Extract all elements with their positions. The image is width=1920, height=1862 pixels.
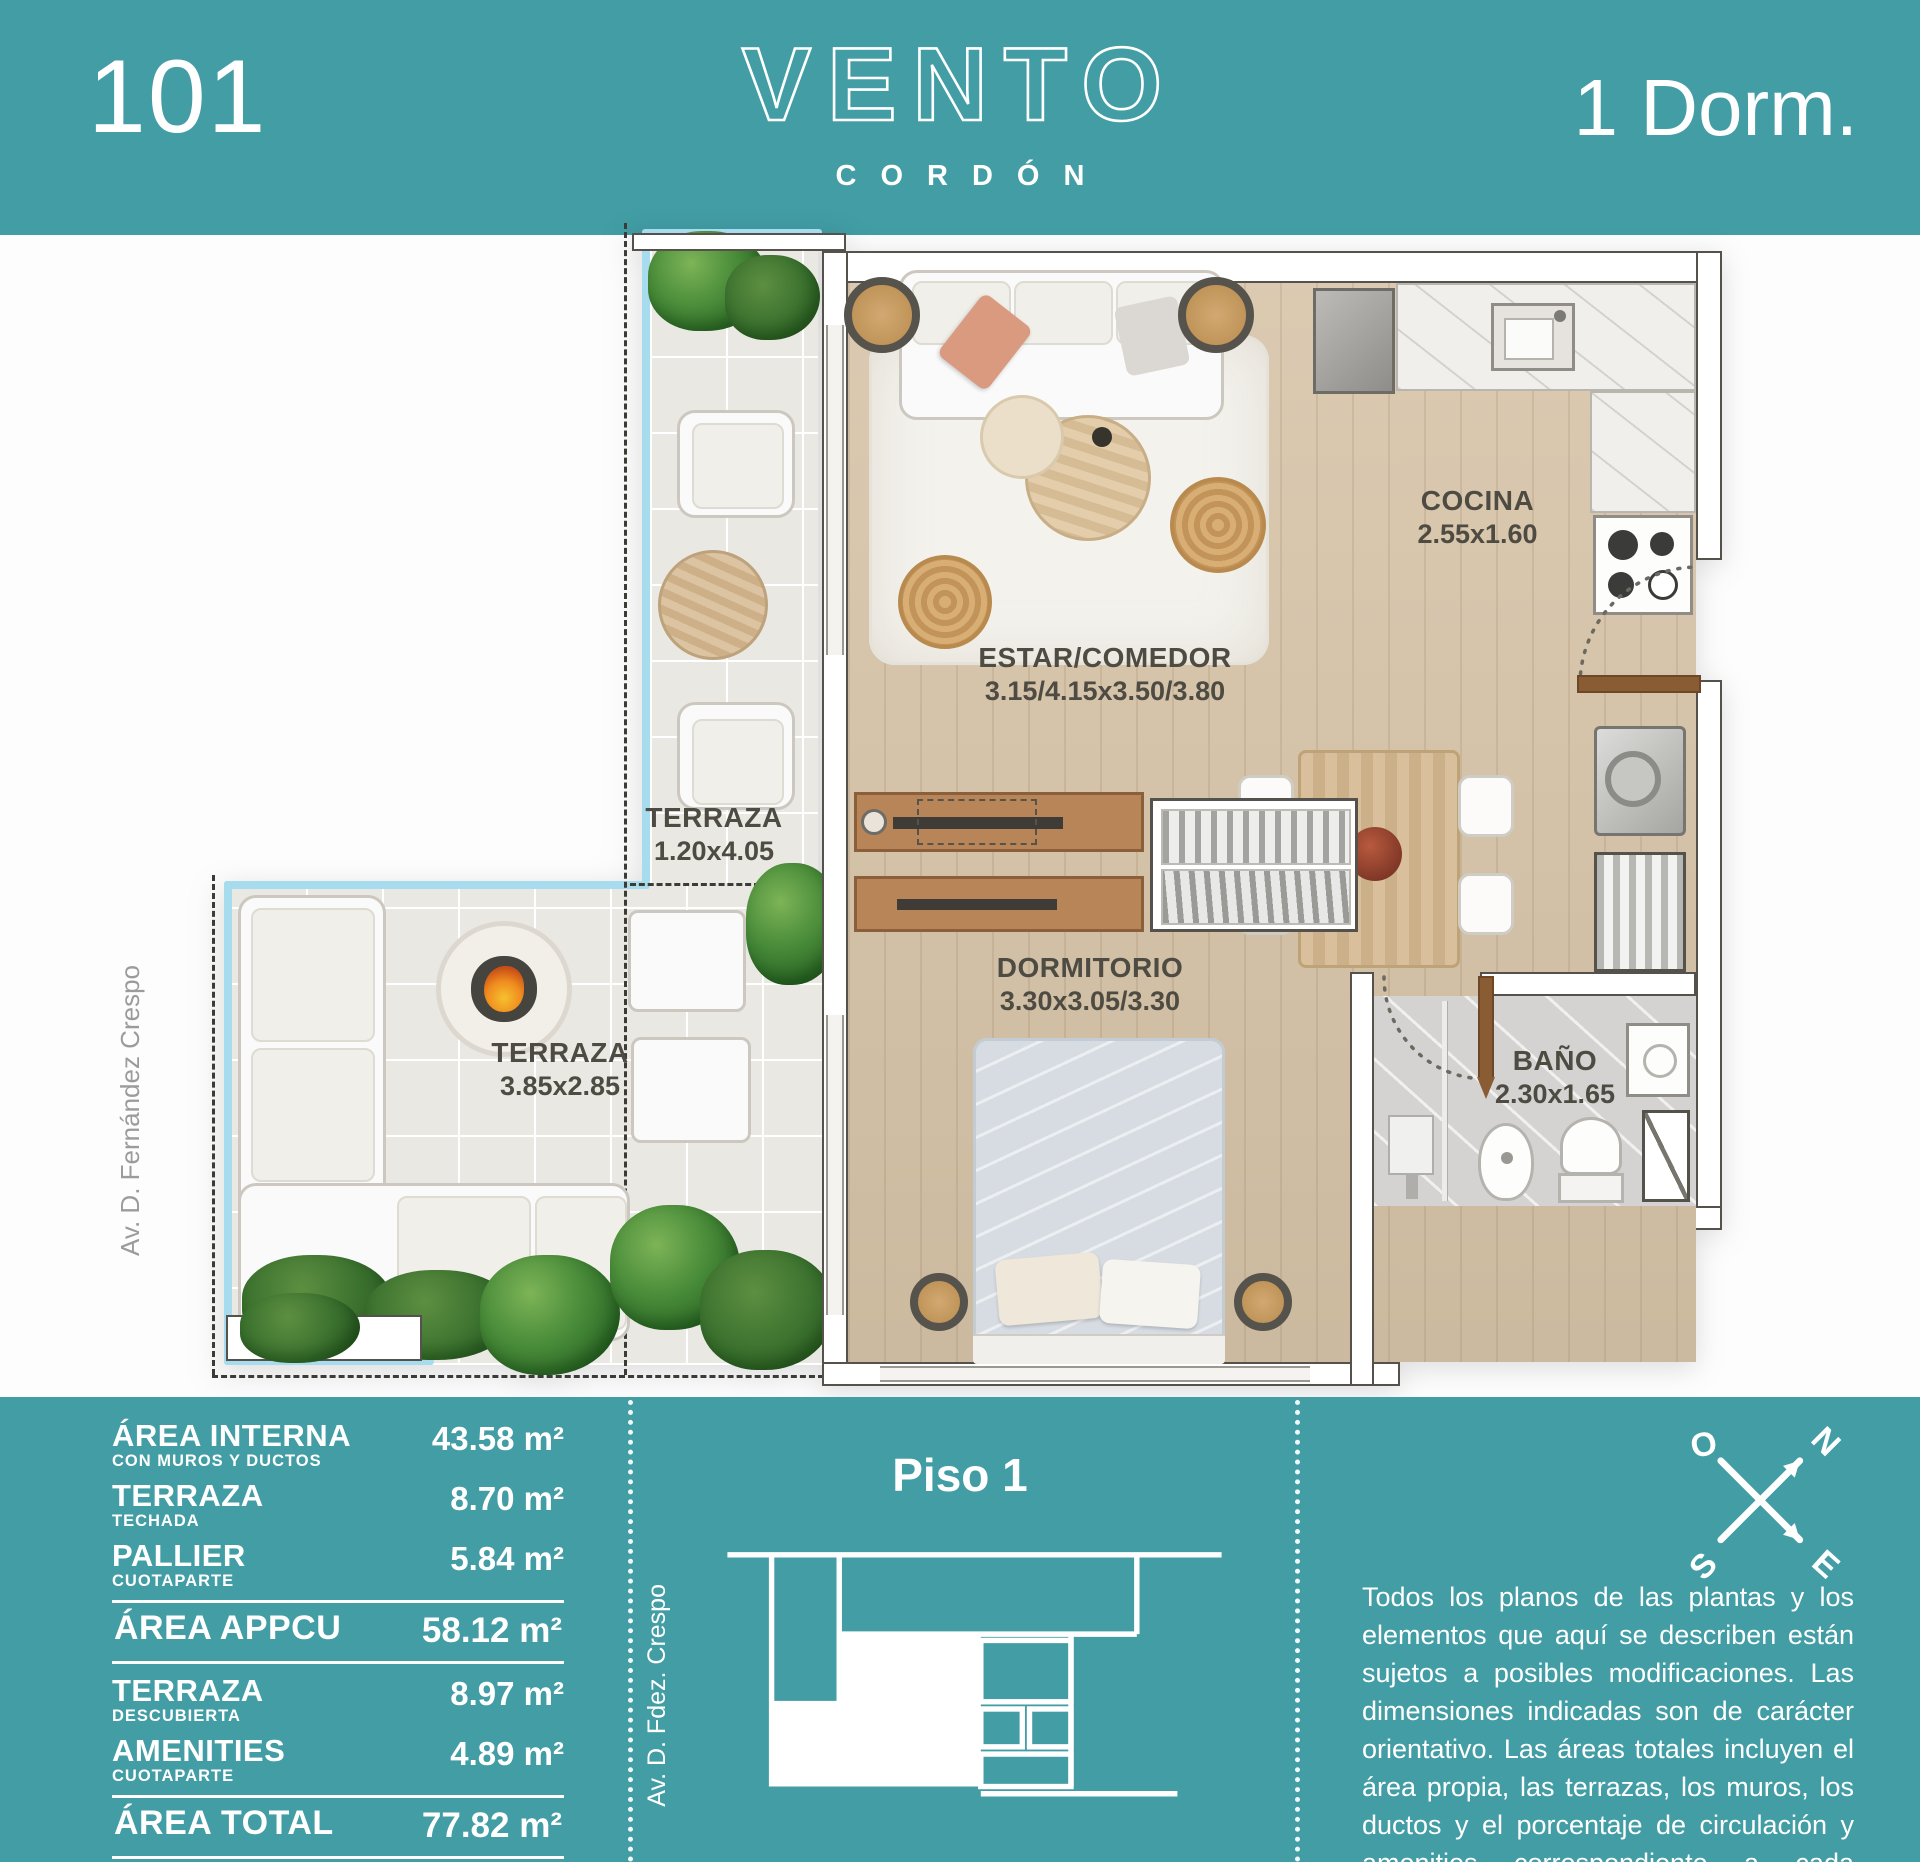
entry-door-leaf [1578,676,1700,692]
unit-number: 101 [88,38,268,157]
area-row-total: ÁREA APPCU 58.12 m² [112,1600,564,1664]
keyplan-street-label: Av. D. Fdez. Crespo [628,1545,686,1845]
compass-icon: O N S E [1672,1412,1857,1597]
keyplan-room [981,1709,1022,1747]
area-row-total: ÁREA TOTAL 77.82 m² [112,1795,564,1859]
brand-word: VENTO [742,27,1178,143]
bath-door-arc [1384,977,1486,1079]
brand-subtitle: CORDÓN [660,160,1260,193]
area-row: TERRAZA DESCUBIERTA 8.97 m² [112,1675,564,1726]
keyplan-diagram [722,1520,1227,1815]
street-label: Av. D. Fernández Crespo [100,880,160,1340]
area-row: TERRAZA TECHADA 8.70 m² [112,1480,564,1531]
floor-plan: TERRAZA 1.20x4.05 TERRAZA 3.85x2.85 [180,215,1740,1400]
footer-divider-icon [1295,1400,1300,1862]
header-bar: 101 VENTO CORDÓN 1 Dorm. [0,0,1920,235]
area-row: PALLIER CUOTAPARTE 5.84 m² [112,1540,564,1591]
brand-logo: VENTO CORDÓN [660,18,1260,193]
bath-door-leaf [1479,977,1493,1079]
door-arcs-overlay [180,215,1740,1400]
compass-west: O [1687,1424,1720,1466]
disclaimer-text: Todos los planos de las plantas y los el… [1362,1578,1854,1862]
vento-logo-icon: VENTO [660,18,1260,153]
keyplan-title: Piso 1 [700,1448,1220,1502]
keyplan-room [981,1754,1071,1786]
area-row: AMENITIES CUOTAPARTE 4.89 m² [112,1735,564,1786]
plan-sheet: 101 VENTO CORDÓN 1 Dorm. Av. D. Fernánde… [0,0,1920,1862]
area-table: ÁREA INTERNA CON MUROS Y DUCTOS 43.58 m²… [112,1420,564,1862]
keyplan-line [839,1555,1137,1634]
door-swing-arrow-icon [1477,1077,1495,1099]
keyplan-line [772,1555,840,1704]
compass-north: N [1804,1420,1847,1463]
keyplan-room [981,1640,1071,1701]
keyplan-unit-highlight [772,1634,981,1786]
entry-door-arc [1580,567,1698,685]
unit-type: 1 Dorm. [1574,62,1859,154]
keyplan-room [1030,1709,1071,1747]
area-row: ÁREA INTERNA CON MUROS Y DUCTOS 43.58 m² [112,1420,564,1471]
